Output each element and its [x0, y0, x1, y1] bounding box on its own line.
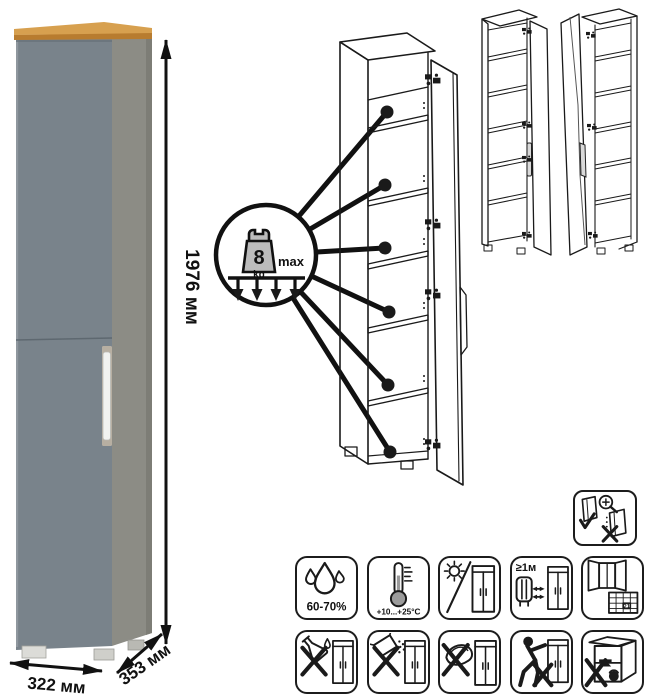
dimension-height: 1976 мм — [166, 40, 202, 644]
water-drop-small-icon — [306, 569, 316, 584]
calendar-day-label: 21 — [624, 604, 631, 610]
temperature-icon: +10...+25°C — [367, 556, 430, 620]
humidity-label: 60-70% — [307, 601, 347, 613]
no-pushing-icon — [510, 630, 573, 694]
cross-x — [374, 648, 397, 675]
water-drop-tiny-icon — [336, 571, 344, 583]
sun-icon — [445, 561, 465, 581]
shelf-pointer-dots — [379, 106, 397, 459]
thermometer-ticks — [404, 568, 411, 581]
cabinet-glyph — [547, 567, 567, 609]
variant-b-handle — [580, 143, 586, 177]
care-icon-grid: 60-70% +10...+25°C — [295, 556, 644, 694]
dimension-width: 322 мм — [10, 663, 102, 698]
double-arrow-icons — [532, 587, 544, 599]
width-label: 322 мм — [27, 674, 87, 698]
door-handle — [103, 352, 111, 440]
foot-back — [128, 640, 144, 650]
powder-box-icon — [370, 633, 400, 658]
no-scraper-icon — [438, 630, 501, 694]
open-door — [431, 60, 467, 485]
temperature-label: +10...+25°C — [376, 608, 420, 617]
load-value: 8 — [253, 247, 264, 269]
door-adjustment-icon — [573, 490, 637, 546]
open-window-icon — [588, 560, 625, 590]
cabinet-glyph — [404, 641, 424, 683]
door-variant-drawings — [475, 5, 648, 257]
drawing-foot-left — [345, 447, 357, 456]
magnifier-icon — [600, 496, 617, 512]
door-correct — [581, 497, 597, 528]
no-overload-icon — [581, 630, 644, 694]
shelves — [368, 115, 428, 406]
door-edge-highlight — [16, 39, 18, 647]
cabinet-glyph — [475, 641, 496, 685]
wood-top-surface — [14, 22, 152, 35]
cabinet-glyph — [547, 640, 567, 682]
height-label: 1976 мм — [181, 249, 202, 325]
cabinet-glyph — [472, 566, 494, 612]
cross-x — [302, 648, 325, 675]
ventilation-calendar-icon: 21 — [581, 556, 644, 620]
variant-a-shelves — [488, 49, 527, 205]
foot-front-right — [94, 649, 114, 660]
kettlebell-icon — [609, 670, 619, 681]
cabinet-body — [14, 22, 152, 660]
door-incorrect — [603, 509, 626, 541]
exploded-drawing: 8 kg max — [205, 15, 480, 495]
max-load-badge: 8 kg max — [216, 205, 316, 305]
cabinet-side-edge-shade — [146, 35, 152, 635]
cabinet-photo: 1976 мм 322 мм 353 мм — [0, 0, 210, 700]
load-qualifier: max — [278, 254, 305, 269]
no-direct-sunlight-icon — [438, 556, 501, 620]
calendar-icon: 21 — [609, 592, 638, 612]
product-spec-sheet: 1976 мм 322 мм 353 мм — [0, 0, 648, 700]
foot-front-left — [22, 646, 46, 658]
variant-door-right — [482, 10, 551, 255]
no-aggressive-liquids-icon — [295, 630, 358, 694]
width-arrow — [10, 663, 102, 671]
water-drop-icon — [315, 563, 335, 593]
no-abrasive-powder-icon — [367, 630, 430, 694]
variant-door-left — [561, 9, 637, 255]
variant-b-shelves — [595, 50, 631, 205]
variant-a-door — [530, 21, 551, 255]
cabinet-front-door — [16, 39, 112, 650]
cabinet-glyph — [333, 641, 353, 683]
humidity-icon: 60-70% — [295, 556, 358, 620]
weight-icon: 8 kg — [243, 230, 275, 280]
hinge-holes — [606, 517, 608, 528]
distance-label: ≥1м — [515, 562, 536, 574]
cabinet-line-drawing — [340, 33, 467, 485]
drawing-foot-right — [401, 461, 413, 469]
thermometer-bulb — [390, 591, 405, 606]
radiator-icon — [516, 577, 531, 606]
heat-source-distance-icon: ≥1м — [510, 556, 573, 620]
